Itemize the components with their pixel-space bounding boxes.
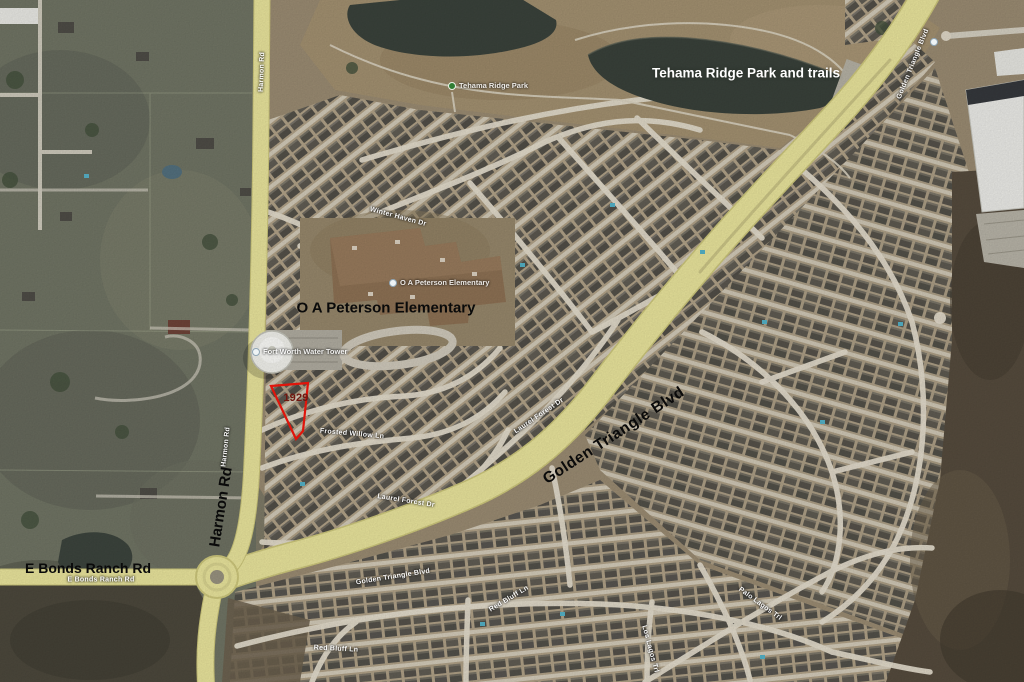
photo-grain <box>0 0 1024 682</box>
water-tower-poi-label: Fort Worth Water Tower <box>263 347 347 356</box>
map-artwork <box>0 0 1024 682</box>
business-poi-icon <box>930 38 938 46</box>
school-poi-label: O A Peterson Elementary <box>400 278 489 287</box>
school-poi-icon <box>389 279 397 287</box>
park-tree-icon <box>448 82 456 90</box>
school-poi-marker[interactable]: O A Peterson Elementary <box>389 278 489 287</box>
business-poi-marker[interactable] <box>930 38 938 46</box>
park-poi-marker[interactable]: Tehama Ridge Park <box>448 81 528 90</box>
water-tower-poi-icon <box>252 348 260 356</box>
park-poi-label: Tehama Ridge Park <box>459 81 528 90</box>
water-tower-poi-marker[interactable]: Fort Worth Water Tower <box>252 347 347 356</box>
satellite-map[interactable]: Tehama Ridge Park and trails O A Peterso… <box>0 0 1024 682</box>
